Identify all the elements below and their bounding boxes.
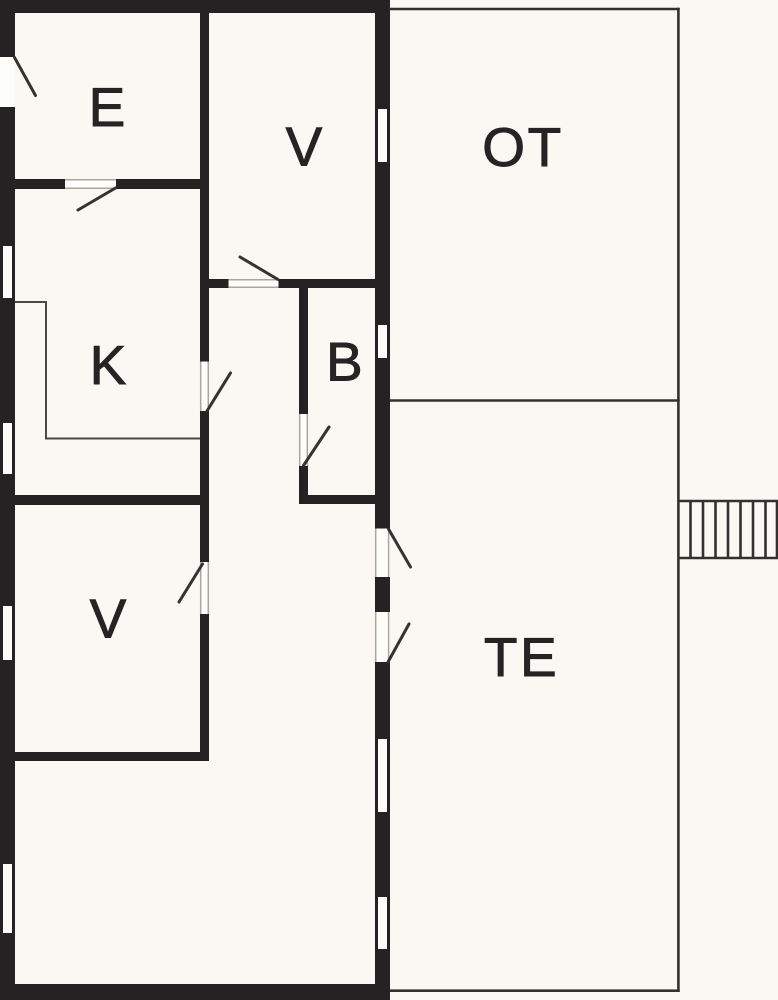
svg-text:OT: OT bbox=[482, 116, 563, 178]
svg-text:V: V bbox=[90, 588, 127, 650]
svg-text:E: E bbox=[89, 76, 126, 138]
svg-text:K: K bbox=[90, 334, 127, 396]
svg-text:TE: TE bbox=[484, 626, 559, 688]
svg-text:B: B bbox=[326, 331, 363, 393]
svg-text:V: V bbox=[286, 116, 323, 178]
